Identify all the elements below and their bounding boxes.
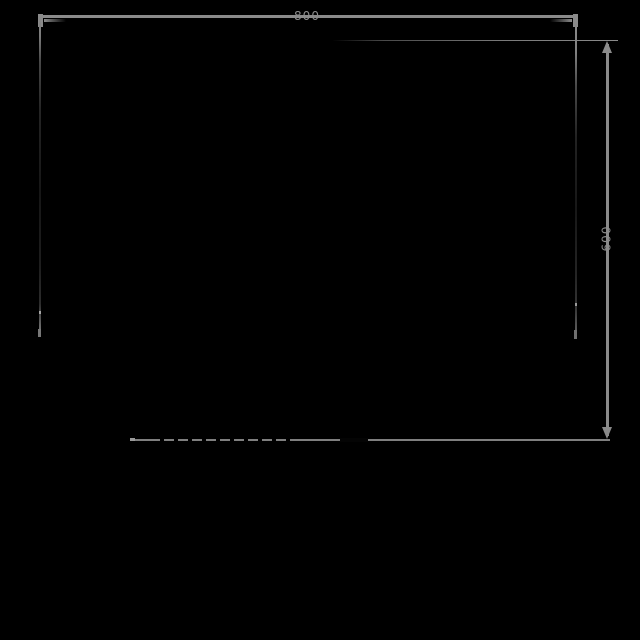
object-right-edge-highlight [575, 303, 577, 306]
object-left-edge-highlight [39, 311, 41, 314]
dim-arrow-left-icon [44, 19, 66, 22]
bottom-extension-line-start-tick [130, 438, 135, 441]
object-right-edge-end [574, 330, 577, 339]
dim-arrow-right-icon [550, 19, 572, 22]
object-left-edge [39, 14, 41, 336]
dim-arrow-down-icon [602, 427, 612, 439]
object-right-edge [575, 14, 577, 339]
dim-arrow-up-icon [602, 41, 612, 53]
width-dimension-label: 800 [281, 8, 333, 24]
height-dimension-label: 600 [600, 219, 615, 259]
top-extension-line [332, 40, 618, 41]
bottom-extension-line-gap [340, 438, 368, 442]
bottom-extension-line-dashed-overlay [150, 438, 295, 442]
technical-drawing-canvas: 800 600 [0, 0, 640, 640]
object-left-edge-end [38, 329, 41, 337]
